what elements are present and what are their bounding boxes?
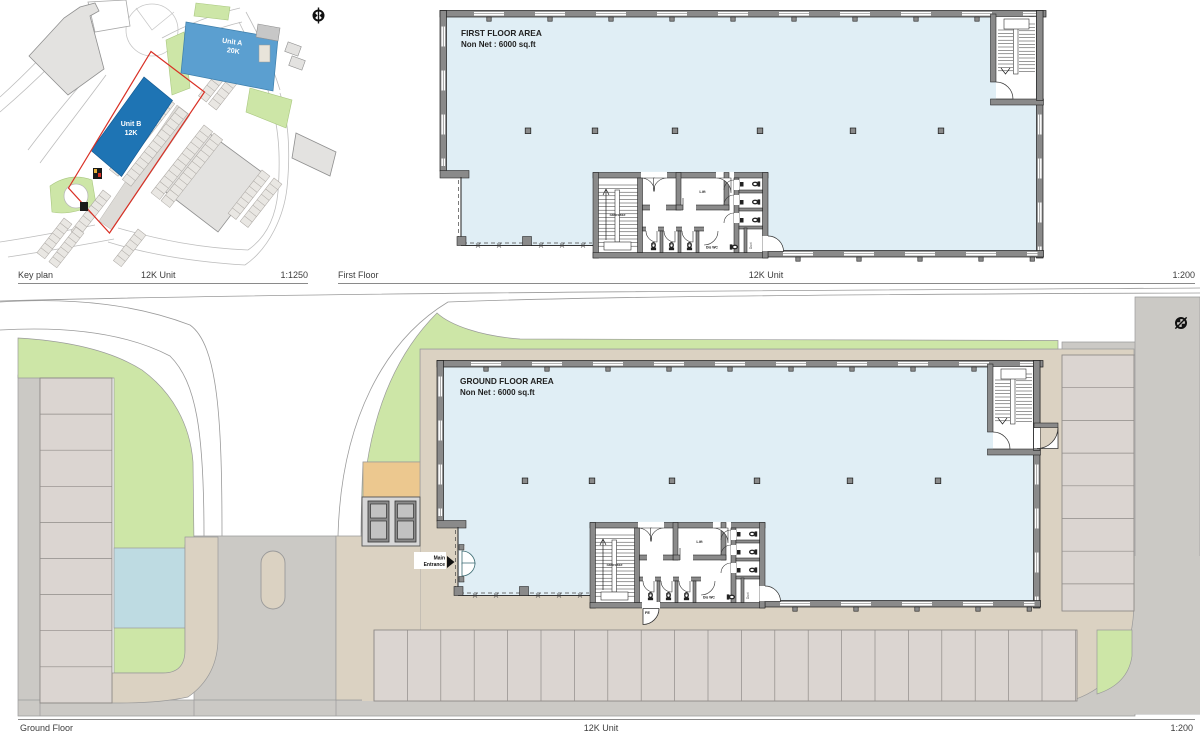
svg-text:1:200: 1:200 [1172, 270, 1195, 280]
svg-text:GROUND FLOOR AREA: GROUND FLOOR AREA [460, 376, 554, 386]
svg-text:Entrance: Entrance [424, 562, 446, 568]
svg-text:Non Net : 6000 sq.ft: Non Net : 6000 sq.ft [461, 40, 536, 49]
svg-text:Duct: Duct [749, 242, 753, 249]
svg-text:Non Net : 6000 sq.ft: Non Net : 6000 sq.ft [460, 388, 535, 397]
svg-text:Dis WC: Dis WC [703, 596, 715, 600]
svg-text:WC: WC [669, 242, 674, 246]
svg-text:FIRST FLOOR AREA: FIRST FLOOR AREA [461, 28, 542, 38]
svg-text:Ground Floor: Ground Floor [20, 723, 73, 733]
svg-text:Main: Main [434, 556, 445, 562]
svg-text:FE: FE [645, 611, 650, 615]
svg-text:WC: WC [666, 592, 671, 596]
svg-text:WC: WC [651, 242, 656, 246]
svg-text:Key plan: Key plan [18, 270, 53, 280]
svg-text:Lift: Lift [696, 539, 703, 544]
svg-text:Dis WC: Dis WC [706, 246, 718, 250]
svg-text:Lift: Lift [699, 189, 706, 194]
svg-text:First Floor: First Floor [338, 270, 379, 280]
svg-text:12K: 12K [125, 130, 138, 137]
svg-text:12K Unit: 12K Unit [141, 270, 176, 280]
svg-text:Staircase: Staircase [607, 563, 623, 567]
svg-text:12K Unit: 12K Unit [584, 723, 619, 733]
svg-text:Unit B: Unit B [121, 121, 142, 128]
svg-text:Duct: Duct [746, 592, 750, 599]
svg-text:WC: WC [648, 592, 653, 596]
svg-text:1:200: 1:200 [1170, 723, 1193, 733]
svg-text:WC: WC [687, 242, 692, 246]
svg-text:WC: WC [684, 592, 689, 596]
svg-text:12K Unit: 12K Unit [749, 270, 784, 280]
svg-text:1:1250: 1:1250 [280, 270, 308, 280]
svg-text:Staircase: Staircase [610, 213, 626, 217]
